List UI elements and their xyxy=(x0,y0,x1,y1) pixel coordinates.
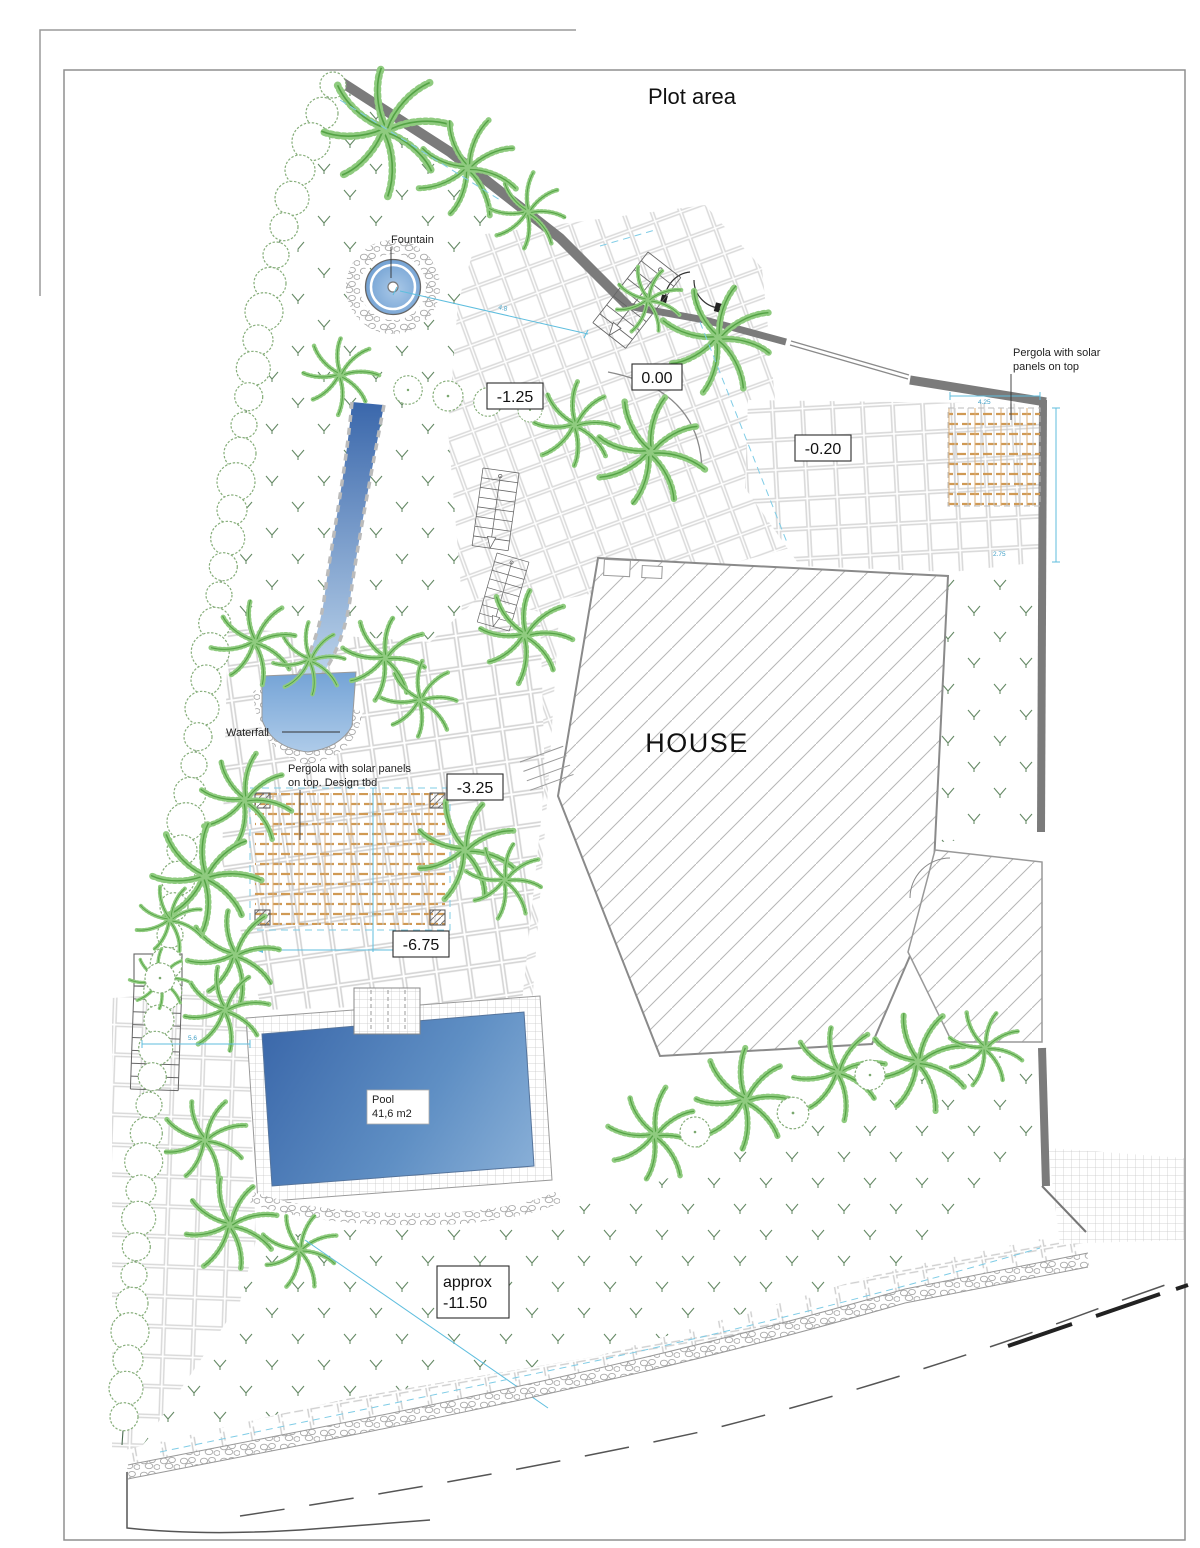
pool-steps xyxy=(354,988,420,1034)
svg-text:Pergola with solar: Pergola with solar xyxy=(1013,347,1101,359)
house: HOUSE xyxy=(520,558,948,1056)
svg-text:panels on top: panels on top xyxy=(1013,361,1079,373)
level-entry-court: -0.20 xyxy=(795,435,851,461)
level-mid-terrace: -3.25 xyxy=(447,774,503,800)
svg-text:41,6 m2: 41,6 m2 xyxy=(372,1108,412,1120)
level-entrance: 0.00 xyxy=(632,364,682,390)
dim-4-25: 4.25 xyxy=(978,399,991,406)
house-label: HOUSE xyxy=(645,728,749,758)
svg-text:Pergola with solar panels: Pergola with solar panels xyxy=(288,763,411,775)
house-terrace xyxy=(908,850,1042,1042)
site-plan: HOUSE 4.8 4.25 2.75 5.6 Plot area xyxy=(0,0,1200,1548)
svg-text:-1.25: -1.25 xyxy=(497,389,534,406)
svg-text:-3.25: -3.25 xyxy=(457,780,494,797)
level-pergola-terrace: -6.75 xyxy=(393,931,449,957)
level-upper-terrace: -1.25 xyxy=(487,383,543,409)
svg-text:Waterfall: Waterfall xyxy=(226,727,269,739)
svg-text:approx: approx xyxy=(443,1274,492,1291)
level-lower-garden: approx -11.50 xyxy=(437,1266,509,1318)
svg-text:Pool: Pool xyxy=(372,1094,394,1106)
dim-2-75: 2.75 xyxy=(993,551,1006,558)
dim-5-6: 5.6 xyxy=(188,1035,197,1042)
pergola-entry xyxy=(948,408,1040,506)
pool-label: Pool 41,6 m2 xyxy=(367,1090,429,1124)
svg-text:-6.75: -6.75 xyxy=(403,937,440,954)
svg-text:Fountain: Fountain xyxy=(391,234,434,246)
waterfall-basin xyxy=(260,672,356,757)
svg-text:-0.20: -0.20 xyxy=(805,441,842,458)
svg-text:-11.50: -11.50 xyxy=(443,1295,487,1312)
svg-text:0.00: 0.00 xyxy=(641,370,672,387)
fountain xyxy=(353,247,433,327)
svg-text:on top. Design tbd: on top. Design tbd xyxy=(288,777,377,789)
page-title: Plot area xyxy=(648,84,737,109)
